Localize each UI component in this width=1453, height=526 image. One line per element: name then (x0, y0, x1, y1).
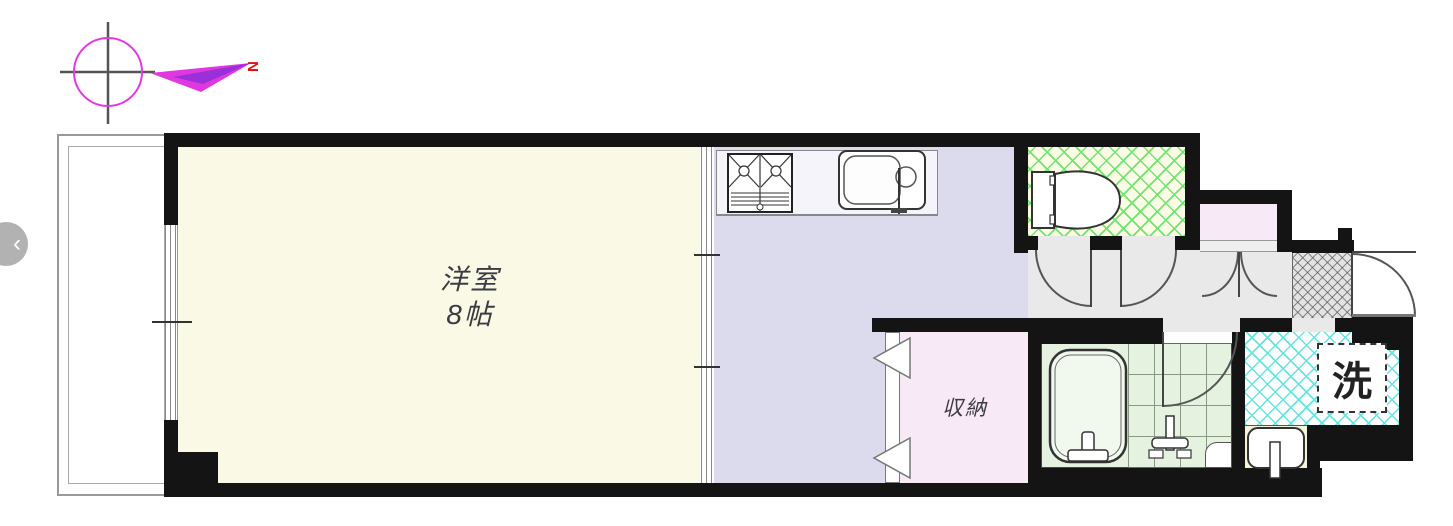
wall-step-top (1185, 190, 1292, 204)
closet-double-door-center (1238, 252, 1240, 297)
wall-pink-right (1277, 190, 1292, 252)
wall-top (168, 133, 1198, 147)
upper-closet (1200, 204, 1277, 240)
wall-toilet-bottom (1090, 236, 1122, 250)
wall-hall-bottom (1014, 318, 1163, 332)
wall-hall-bottom (1335, 318, 1352, 332)
bathtub-icon (1048, 348, 1128, 466)
wall-bottom (164, 483, 1322, 497)
doorway-floor (1035, 236, 1090, 250)
wall-kitchen-right (1014, 133, 1028, 253)
wall-bath-top (1028, 332, 1163, 344)
floor-plan-page: N (0, 0, 1453, 526)
laundry-label: 洗 (1332, 349, 1372, 407)
chevron-left-icon: ‹ (13, 230, 21, 258)
room-name: 洋室 (390, 262, 550, 297)
wall-closet-top (872, 318, 1028, 332)
sliding-door-tick (694, 254, 720, 256)
room-label: 洋室 8帖 (390, 262, 550, 332)
doorway-floor (1292, 318, 1335, 332)
wall-hall-bottom (1240, 318, 1292, 332)
folding-door-icon (870, 332, 912, 483)
toilet-door-leaf (1090, 250, 1092, 307)
wall-toilet-bottom (1175, 236, 1200, 250)
bath-step (1205, 442, 1232, 468)
north-label: N (244, 61, 261, 72)
compass-icon (55, 16, 265, 128)
wall-entrance-post (1338, 228, 1352, 253)
sliding-door-tick (694, 366, 720, 368)
closet-label: 収納 (920, 392, 1010, 422)
room-size: 8帖 (390, 297, 550, 332)
wall-bottomright-block (1320, 425, 1413, 461)
balcony-inner-line (68, 146, 165, 484)
doorway-floor (1163, 318, 1240, 332)
doorway-floor (1122, 236, 1175, 250)
wall-toilet-bottom (1028, 236, 1038, 250)
entrance-door-arc (1352, 253, 1416, 316)
shower-icon (1146, 414, 1194, 466)
entrance-threshold (1352, 314, 1416, 317)
wall-corner-step (178, 452, 218, 483)
sink-icon (838, 150, 926, 218)
hall-door-leaf (1120, 250, 1122, 307)
wall-bath-left (1028, 332, 1041, 483)
sliding-door-lines (701, 147, 713, 483)
laundry-label-box: 洗 (1317, 343, 1387, 413)
wall-laundry-right (1399, 348, 1413, 428)
entrance-door-leaf (1351, 253, 1353, 316)
entrance-genkan (1292, 253, 1352, 318)
upper-closet-sill (1200, 240, 1277, 252)
toilet-icon (1030, 162, 1122, 238)
bathroom-door-leaf (1162, 332, 1164, 407)
stove-icon (727, 153, 793, 213)
wall-nook-right (1307, 425, 1320, 483)
prev-button[interactable]: ‹ (0, 222, 28, 266)
wall-left-upper (164, 133, 178, 225)
entrance-door-top-line (1352, 251, 1416, 253)
window-tick (152, 321, 192, 323)
washbasin-icon (1246, 426, 1308, 480)
